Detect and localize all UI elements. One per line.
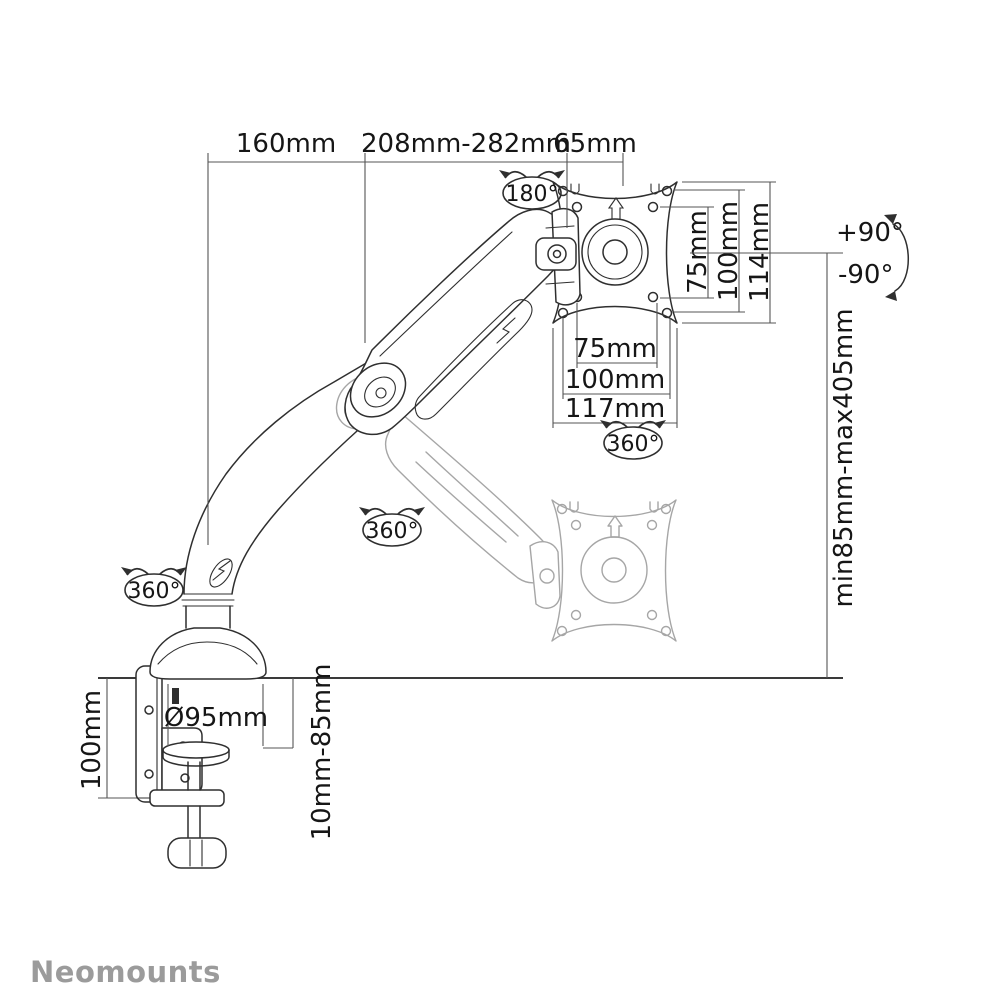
desk-clamp — [136, 666, 229, 868]
clamp-height-label: 100mm — [77, 690, 107, 790]
dim-vesa-h-plate-label: 117mm — [565, 394, 665, 424]
brand-logo: Neomounts — [30, 955, 221, 989]
rotation-head-label: 180° — [506, 182, 559, 207]
rotation-arm-group: 360° — [359, 507, 425, 546]
height-range-label: min85mm-max405mm — [829, 308, 859, 607]
rotation-vesa-label: 360° — [607, 432, 660, 457]
dim-vesa-v-inner-label: 75mm — [683, 210, 713, 294]
rotation-head-group: 180° — [499, 170, 565, 209]
dim-vesa-v-outer-label: 100mm — [714, 201, 744, 301]
dim-top-right-label: 65mm — [553, 129, 637, 159]
desk-thickness-label: 10mm-85mm — [307, 664, 337, 841]
tilt-group: +90° -90° — [836, 214, 908, 301]
product-dimension-diagram: 160mm 208mm-282mm 65mm 75mm 100mm 114mm … — [0, 0, 1004, 1004]
rotation-arm-label: 360° — [366, 519, 419, 544]
rotation-base-label: 360° — [128, 579, 181, 604]
rotation-base-group: 360° — [121, 567, 187, 606]
ghost-vesa-bracket — [530, 542, 560, 608]
dim-top-left-label: 160mm — [236, 129, 336, 159]
ghost-vesa-plate — [530, 500, 676, 641]
desk-mount-arm-diagram: 160mm 208mm-282mm 65mm 75mm 100mm 114mm … — [0, 0, 1004, 1004]
tilt-up-label: +90° — [836, 218, 904, 248]
dim-vesa-h-inner-label: 75mm — [573, 334, 657, 364]
dim-height-range-group: min85mm-max405mm — [690, 253, 859, 678]
dim-top-middle-label: 208mm-282mm — [361, 129, 571, 159]
rotation-vesa-group: 360° — [600, 420, 666, 459]
base-pole — [186, 606, 230, 628]
tilt-down-label: -90° — [838, 260, 893, 290]
arm-base — [150, 594, 266, 704]
dim-vesa-v-plate-label: 114mm — [745, 202, 775, 302]
base-diameter-label: Ø95mm — [164, 703, 268, 733]
clamp-knob — [168, 838, 226, 868]
dim-clamp-height-group: 100mm — [77, 678, 136, 798]
dim-vesa-horizontal-group: 75mm 100mm 117mm — [553, 303, 677, 428]
clamp-lower-jaw — [150, 790, 224, 806]
clamp-pad — [163, 742, 229, 758]
dim-vesa-h-outer-label: 100mm — [565, 365, 665, 395]
dim-desk-thickness-group: 10mm-85mm — [293, 664, 337, 841]
base-slot-detail — [172, 688, 179, 704]
